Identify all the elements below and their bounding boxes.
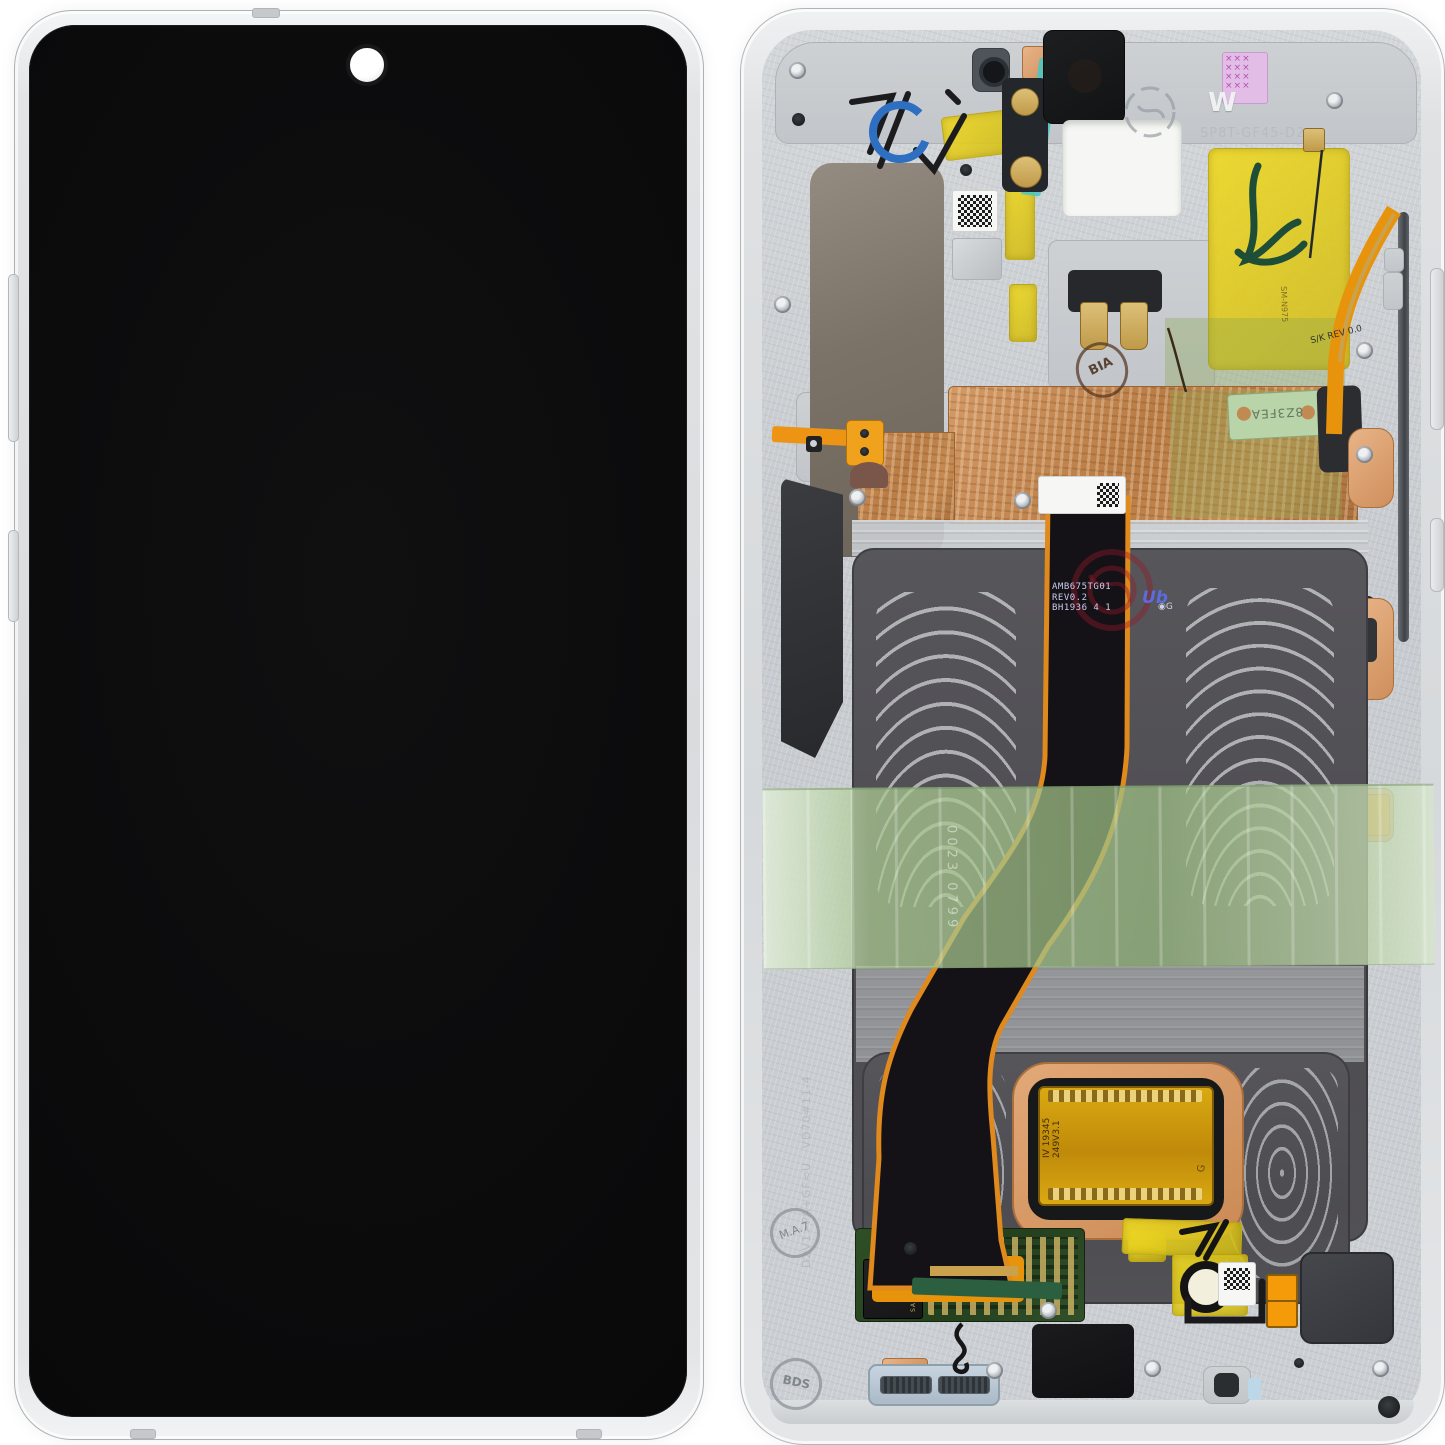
screw <box>986 1362 1003 1379</box>
pen-scratch <box>1310 150 1322 258</box>
handwriting-bottom <box>1182 1222 1226 1258</box>
frame-hole <box>1294 1358 1304 1368</box>
green-tape-band: 0023 0799 <box>762 784 1434 970</box>
copper-crease <box>1168 328 1186 392</box>
frame-hole <box>904 1242 917 1255</box>
gray-stamp <box>1126 88 1174 136</box>
screw <box>1144 1360 1161 1377</box>
flex-gold-fingers <box>930 1266 1018 1276</box>
cof-logo-g: ◉G <box>1158 602 1173 612</box>
cof-line2: REV0.2 <box>1052 593 1111 604</box>
tape-print: 0023 0799 <box>944 825 960 931</box>
flex-sticker-code <box>1097 483 1119 507</box>
cof-line3: BH1936 4 1 <box>1052 603 1111 614</box>
cof-label: AMB675TG01 REV0.2 BH1936 4 1 <box>1052 582 1111 614</box>
screw <box>1040 1302 1057 1319</box>
overlay-graphics <box>0 0 1445 1445</box>
marker-squiggle <box>955 1324 967 1372</box>
product-photo: ×××××××××××× W SP8T-GF45-D2 <box>0 0 1445 1445</box>
green-scribble <box>1238 166 1304 262</box>
cof-line1: AMB675TG01 <box>1052 582 1111 593</box>
flex-top-sticker <box>1038 476 1126 514</box>
screw <box>1372 1360 1389 1377</box>
